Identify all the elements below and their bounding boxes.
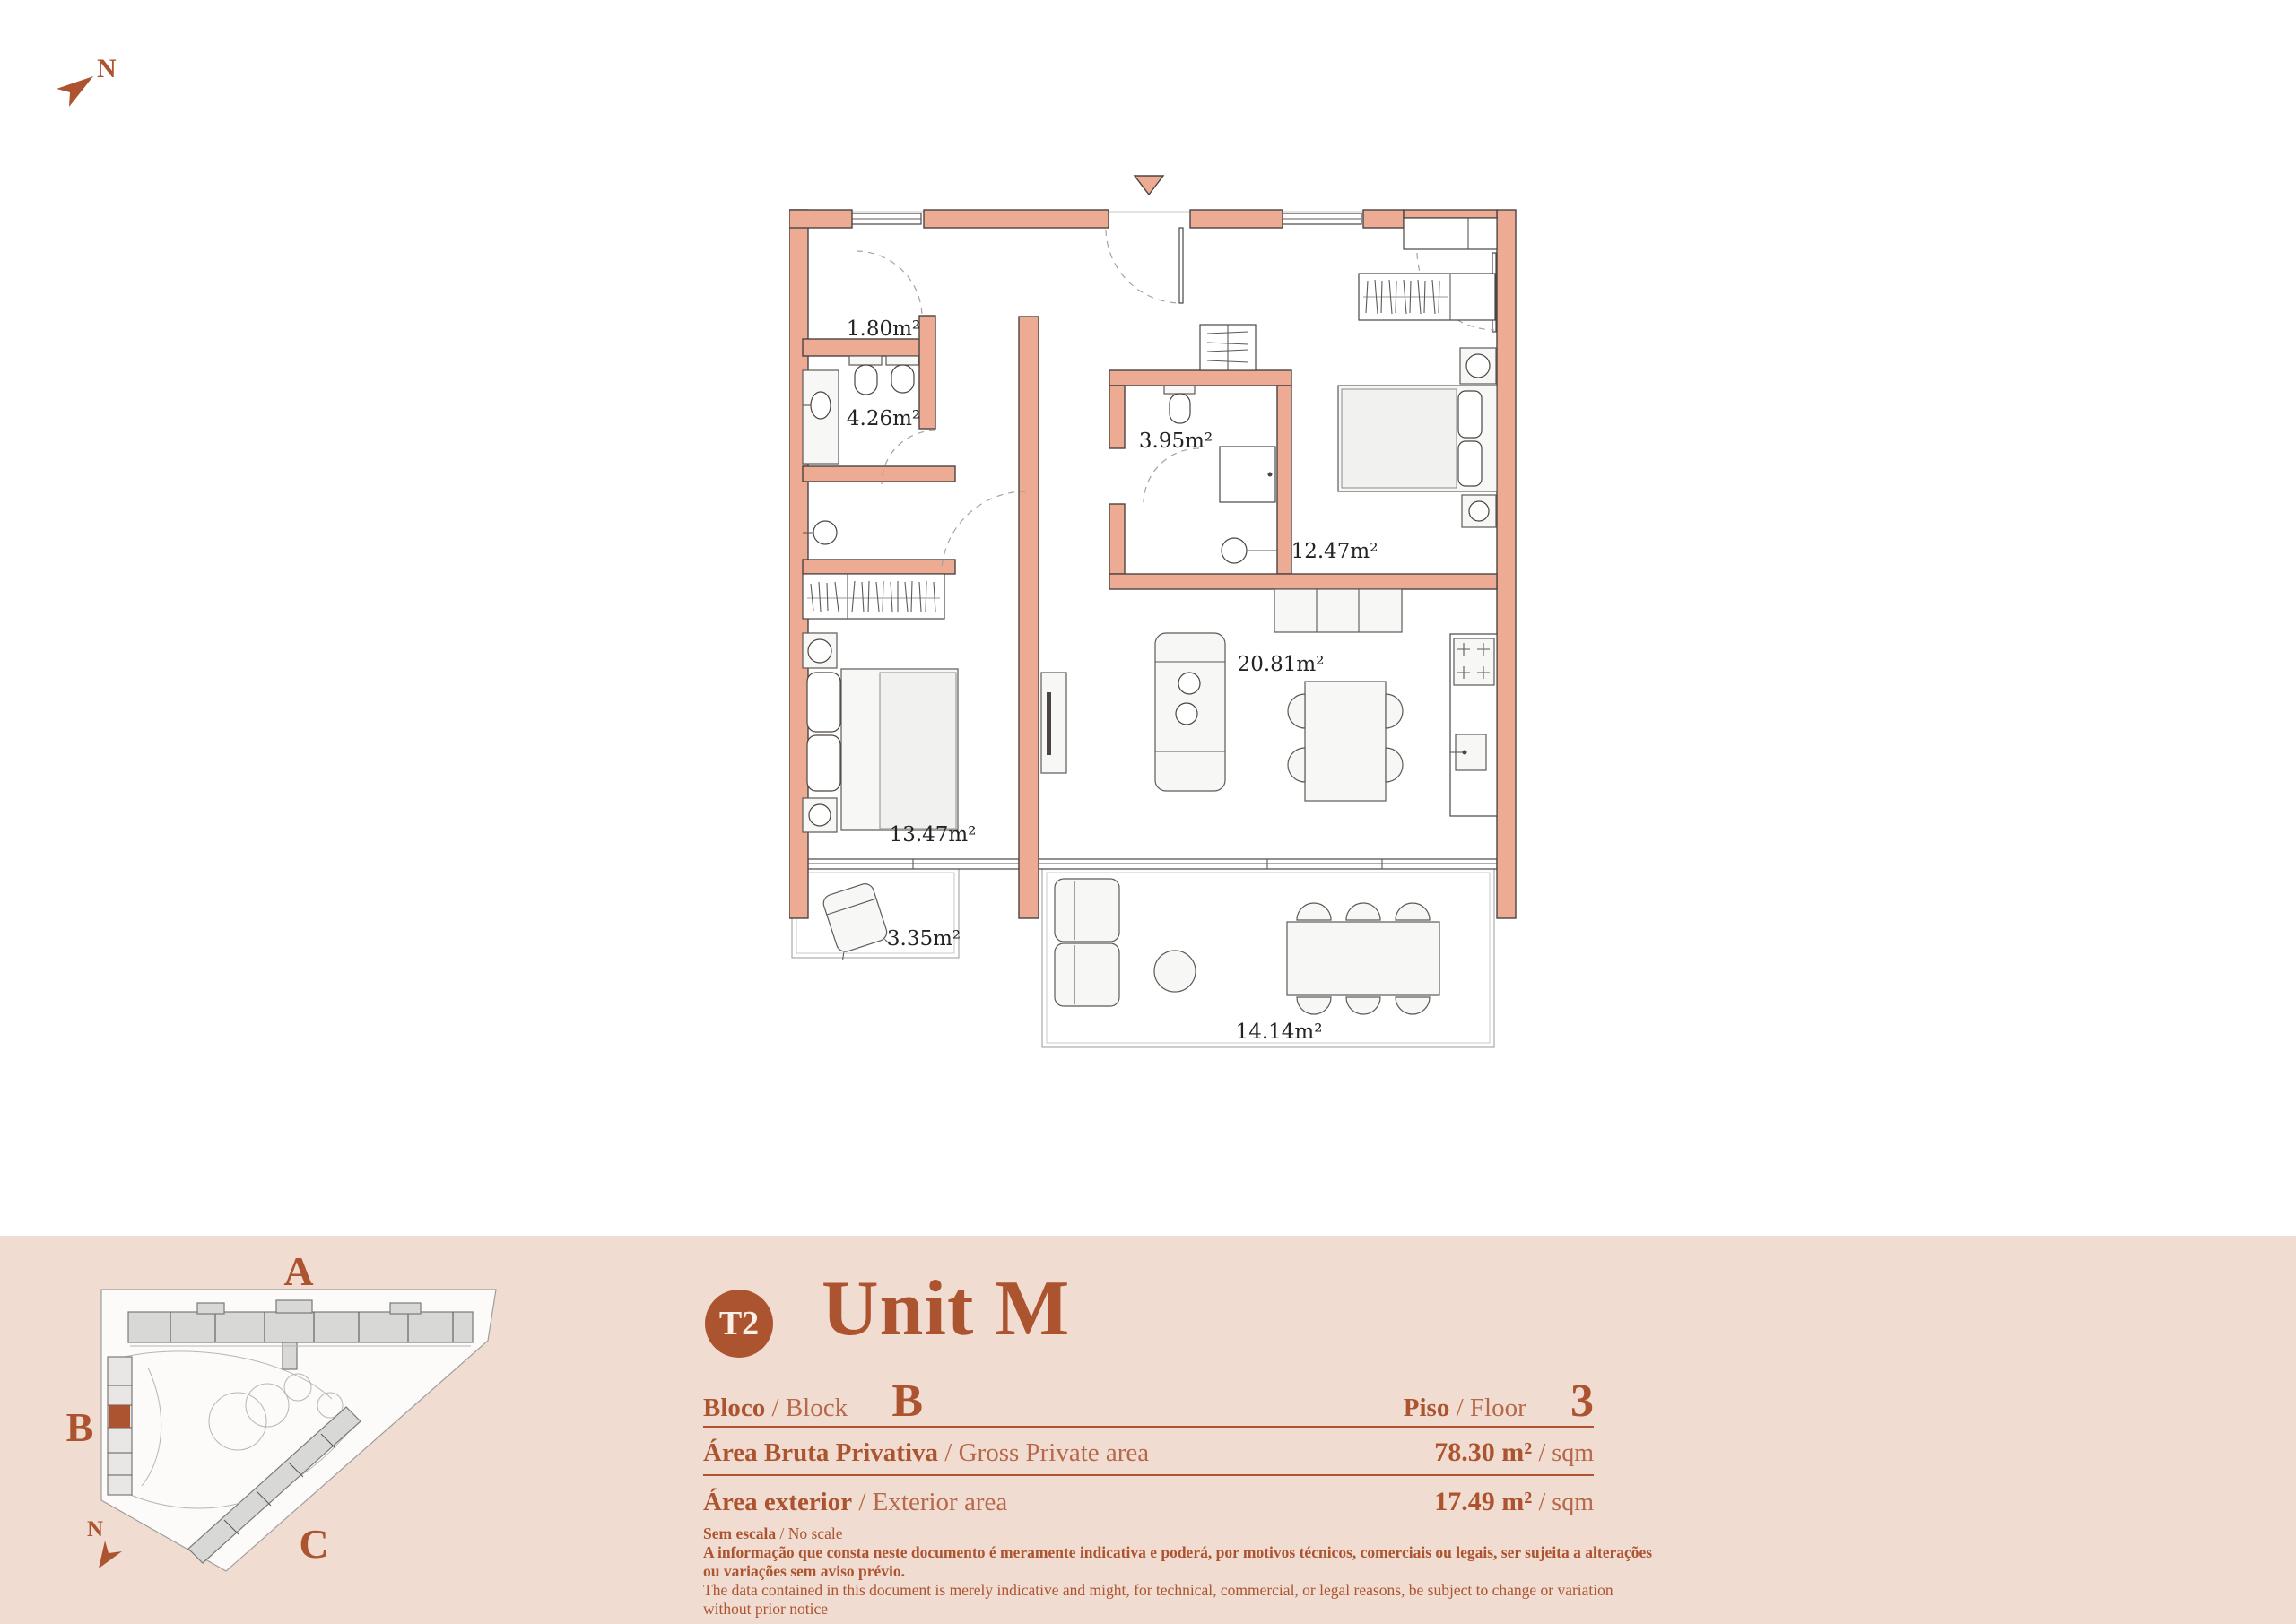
highlighted-unit bbox=[109, 1405, 130, 1428]
disclaimer-en: The data contained in this document is m… bbox=[703, 1581, 1654, 1619]
room-area-label: 3.95m² bbox=[1139, 430, 1213, 453]
living-kitchen-furniture bbox=[1155, 589, 1497, 816]
block-floor-row: Bloco / Block B Piso / Floor 3 bbox=[703, 1383, 1594, 1423]
room-area-label: 20.81m² bbox=[1238, 653, 1325, 676]
site-block-b bbox=[108, 1357, 132, 1495]
bedroom-2-furniture bbox=[1338, 274, 1497, 527]
gross-area-label: Área Bruta Privativa / Gross Private are… bbox=[703, 1438, 1149, 1468]
hall-closet bbox=[1200, 325, 1256, 370]
block-value: B bbox=[891, 1376, 923, 1427]
block-c-label: C bbox=[299, 1521, 328, 1567]
disclaimer-pt: A informação que consta neste documento … bbox=[703, 1543, 1654, 1581]
room-area-label: 3.35m² bbox=[887, 927, 961, 951]
fine-print: Sem escala / No scale A informação que c… bbox=[703, 1524, 1654, 1619]
room-area-label: 4.26m² bbox=[847, 407, 920, 430]
floor-plan: 1.80m² 4.26m² 3.95m² 12.47m² 20.81m² 13.… bbox=[789, 170, 1518, 1058]
brochure-page: N bbox=[0, 0, 2296, 1624]
tv-cabinet bbox=[1041, 673, 1066, 773]
exterior-area-value: 17.49 m² / sqm bbox=[1434, 1487, 1594, 1517]
site-plan: A B C N bbox=[63, 1251, 583, 1610]
block-a-label: A bbox=[283, 1251, 313, 1294]
bathroom-2-fixtures bbox=[1164, 386, 1277, 563]
exterior-area-label: Área exterior / Exterior area bbox=[703, 1488, 1007, 1517]
room-area-label: 1.80m² bbox=[847, 317, 920, 341]
site-north-arrow-icon bbox=[99, 1541, 122, 1568]
north-arrow-icon bbox=[57, 76, 93, 107]
exterior-area-row: Área exterior / Exterior area 17.49 m² /… bbox=[703, 1487, 1594, 1517]
divider bbox=[703, 1426, 1594, 1428]
north-label: N bbox=[97, 54, 117, 83]
room-area-label: 13.47m² bbox=[890, 823, 977, 847]
bedroom-1-furniture bbox=[803, 574, 958, 832]
scale-note: Sem escala / No scale bbox=[703, 1524, 1654, 1543]
room-area-label: 12.47m² bbox=[1291, 540, 1378, 563]
divider bbox=[703, 1474, 1594, 1476]
typology-badge: T2 bbox=[705, 1290, 773, 1358]
site-north-label: N bbox=[87, 1517, 103, 1541]
block-b-label: B bbox=[66, 1404, 94, 1450]
unit-title: Unit M bbox=[822, 1270, 1070, 1349]
floor-label: Piso / Floor 3 bbox=[1404, 1383, 1594, 1423]
room-area-label: 14.14m² bbox=[1236, 1020, 1323, 1044]
terrace-furniture bbox=[1055, 879, 1439, 1014]
balcony-chair bbox=[822, 881, 891, 960]
gross-area-row: Área Bruta Privativa / Gross Private are… bbox=[703, 1437, 1594, 1468]
gross-area-value: 78.30 m² / sqm bbox=[1434, 1437, 1594, 1468]
entry-marker-icon bbox=[1135, 176, 1163, 195]
floor-value: 3 bbox=[1570, 1376, 1594, 1427]
north-compass: N bbox=[36, 25, 152, 124]
bathroom-1-fixtures bbox=[803, 356, 918, 544]
block-label: Bloco / Block B bbox=[703, 1383, 923, 1423]
